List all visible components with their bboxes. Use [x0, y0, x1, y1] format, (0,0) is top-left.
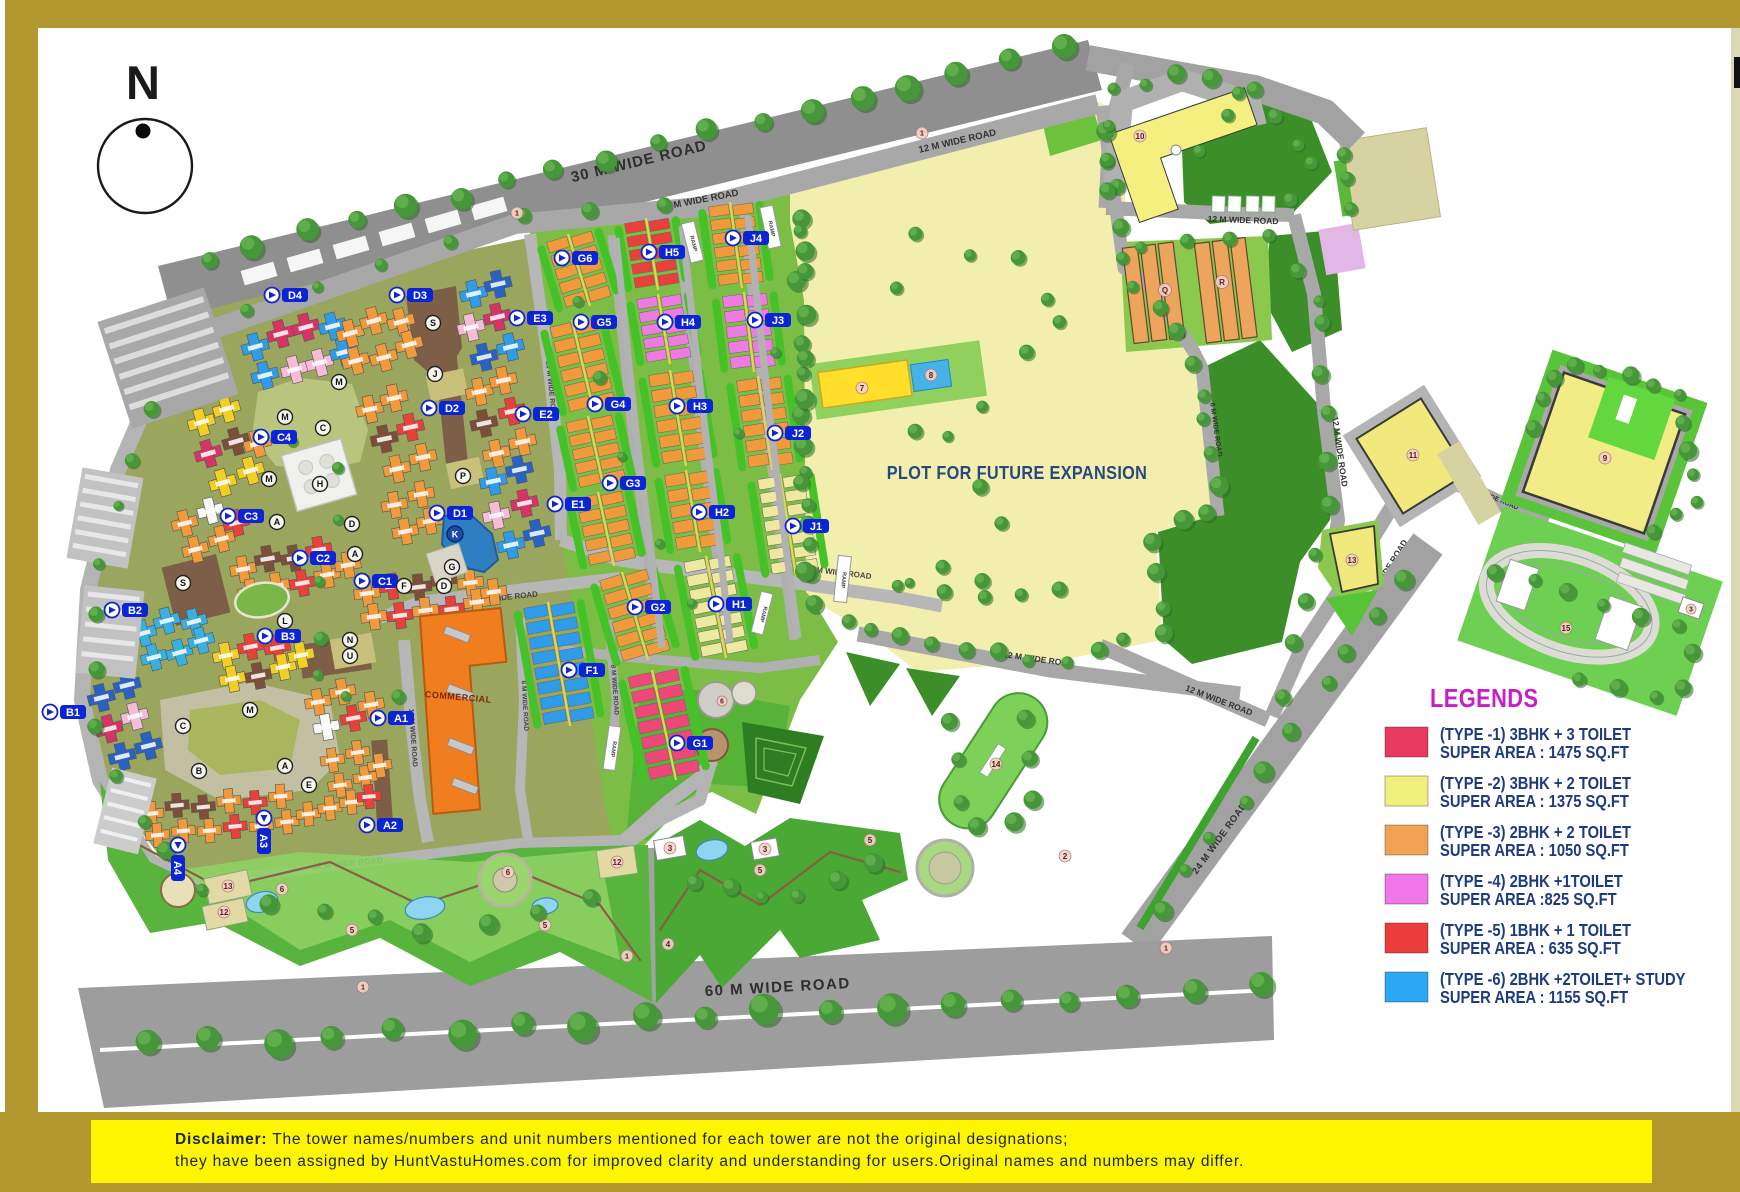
svg-text:U: U	[347, 651, 354, 661]
svg-text:E2: E2	[539, 409, 552, 421]
svg-text:10: 10	[1136, 132, 1145, 141]
svg-text:SUPER AREA : 1375 SQ.FT: SUPER AREA : 1375 SQ.FT	[1440, 792, 1629, 812]
svg-text:E3: E3	[533, 313, 546, 325]
svg-text:Q: Q	[1162, 286, 1168, 295]
svg-text:15: 15	[1562, 624, 1571, 633]
svg-text:3: 3	[668, 844, 673, 853]
svg-text:D: D	[441, 581, 448, 591]
svg-text:G3: G3	[626, 478, 641, 490]
svg-text:D4: D4	[288, 290, 303, 302]
svg-text:D: D	[349, 519, 356, 529]
svg-text:LEGENDS: LEGENDS	[1430, 684, 1538, 713]
svg-text:M: M	[281, 412, 289, 422]
svg-text:N: N	[347, 635, 354, 645]
svg-text:S: S	[430, 318, 436, 328]
svg-text:5: 5	[868, 836, 873, 845]
svg-text:H2: H2	[715, 507, 729, 519]
svg-text:A: A	[352, 549, 359, 559]
svg-text:6: 6	[280, 885, 285, 894]
svg-text:B2: B2	[128, 605, 142, 617]
svg-text:J4: J4	[750, 233, 763, 245]
svg-text:(TYPE -3) 2BHK + 2 TOILET: (TYPE -3) 2BHK + 2 TOILET	[1440, 823, 1631, 843]
svg-text:Disclaimer: The tower names/nu: Disclaimer: The tower names/numbers and …	[175, 1131, 1068, 1148]
svg-text:E1: E1	[571, 499, 584, 511]
svg-text:M: M	[335, 377, 343, 387]
svg-text:H: H	[317, 479, 324, 489]
svg-text:P: P	[460, 471, 466, 481]
svg-text:B3: B3	[281, 631, 295, 643]
svg-text:D1: D1	[453, 508, 467, 520]
svg-text:G6: G6	[578, 253, 593, 265]
svg-text:11: 11	[1409, 451, 1418, 460]
svg-text:5: 5	[350, 926, 355, 935]
svg-text:SUPER AREA : 1050 SQ.FT: SUPER AREA : 1050 SQ.FT	[1440, 841, 1629, 861]
svg-text:C3: C3	[244, 511, 258, 523]
svg-text:(TYPE -6) 2BHK +2TOILET+ STUDY: (TYPE -6) 2BHK +2TOILET+ STUDY	[1440, 970, 1685, 990]
svg-text:1: 1	[361, 983, 365, 992]
svg-text:13: 13	[224, 882, 233, 891]
svg-text:G2: G2	[651, 602, 666, 614]
svg-text:PLOT FOR FUTURE EXPANSION: PLOT FOR FUTURE EXPANSION	[887, 462, 1148, 483]
svg-text:C1: C1	[378, 576, 392, 588]
svg-text:C: C	[180, 721, 187, 731]
svg-text:12: 12	[220, 908, 229, 917]
svg-text:(TYPE -2) 3BHK + 2 TOILET: (TYPE -2) 3BHK + 2 TOILET	[1440, 774, 1631, 794]
svg-text:SUPER AREA : 1475 SQ.FT: SUPER AREA : 1475 SQ.FT	[1440, 743, 1629, 763]
svg-text:J3: J3	[772, 315, 784, 327]
svg-text:K: K	[452, 530, 459, 540]
svg-text:J: J	[432, 369, 437, 379]
svg-text:S: S	[180, 578, 186, 588]
svg-text:14: 14	[992, 760, 1001, 769]
svg-text:D3: D3	[413, 290, 427, 302]
svg-text:C2: C2	[316, 553, 330, 565]
svg-text:(TYPE -5) 1BHK + 1 TOILET: (TYPE -5) 1BHK + 1 TOILET	[1440, 921, 1631, 941]
svg-text:1: 1	[625, 952, 629, 961]
svg-text:1: 1	[1164, 944, 1168, 953]
svg-text:SUPER AREA :825 SQ.FT: SUPER AREA :825 SQ.FT	[1440, 890, 1617, 910]
svg-text:A3: A3	[257, 834, 269, 848]
svg-text:7: 7	[860, 384, 865, 393]
svg-text:B: B	[196, 766, 203, 776]
svg-text:M: M	[265, 474, 273, 484]
svg-text:C4: C4	[277, 432, 292, 444]
svg-text:H5: H5	[665, 247, 679, 259]
svg-text:F: F	[401, 581, 407, 591]
svg-text:8: 8	[929, 371, 934, 380]
svg-text:H4: H4	[681, 317, 696, 329]
svg-text:G5: G5	[597, 317, 612, 329]
svg-text:13: 13	[1348, 556, 1357, 565]
svg-text:1: 1	[920, 129, 924, 138]
svg-text:L: L	[282, 616, 288, 626]
svg-text:H3: H3	[693, 401, 707, 413]
svg-text:J1: J1	[810, 521, 822, 533]
svg-text:9: 9	[1603, 454, 1608, 463]
svg-text:G4: G4	[611, 399, 627, 411]
svg-text:4: 4	[666, 940, 671, 949]
svg-text:A: A	[282, 761, 289, 771]
svg-text:N: N	[126, 56, 160, 109]
svg-text:G: G	[448, 562, 455, 572]
svg-text:F1: F1	[586, 665, 599, 677]
svg-text:(TYPE -4) 2BHK +1TOILET: (TYPE -4) 2BHK +1TOILET	[1440, 872, 1623, 892]
svg-text:R: R	[1219, 278, 1225, 287]
svg-text:6: 6	[720, 699, 724, 706]
svg-text:SUPER AREA : 1155 SQ.FT: SUPER AREA : 1155 SQ.FT	[1440, 988, 1628, 1008]
svg-text:5: 5	[543, 921, 548, 930]
svg-text:3: 3	[1689, 607, 1693, 614]
svg-text:A: A	[274, 517, 281, 527]
svg-text:they have been assigned by Hun: they have been assigned by HuntVastuHome…	[175, 1153, 1244, 1170]
svg-text:1: 1	[515, 209, 519, 218]
svg-text:5: 5	[758, 866, 763, 875]
svg-text:SUPER AREA : 635 SQ.FT: SUPER AREA : 635 SQ.FT	[1440, 939, 1621, 959]
svg-text:E: E	[306, 780, 312, 790]
svg-text:H1: H1	[732, 599, 746, 611]
svg-text:2: 2	[1063, 852, 1068, 861]
svg-text:A4: A4	[171, 861, 183, 876]
svg-text:D2: D2	[445, 403, 459, 415]
svg-text:6: 6	[506, 868, 511, 877]
svg-text:12: 12	[613, 858, 622, 867]
svg-text:M: M	[246, 705, 254, 715]
svg-text:G1: G1	[693, 738, 708, 750]
svg-text:3: 3	[763, 845, 768, 854]
svg-text:B1: B1	[66, 707, 80, 719]
svg-text:A2: A2	[383, 820, 397, 832]
svg-text:J2: J2	[792, 428, 804, 440]
svg-text:A1: A1	[394, 713, 408, 725]
svg-text:C: C	[320, 423, 327, 433]
svg-text:(TYPE -1) 3BHK + 3 TOILET: (TYPE -1) 3BHK + 3 TOILET	[1440, 725, 1631, 745]
